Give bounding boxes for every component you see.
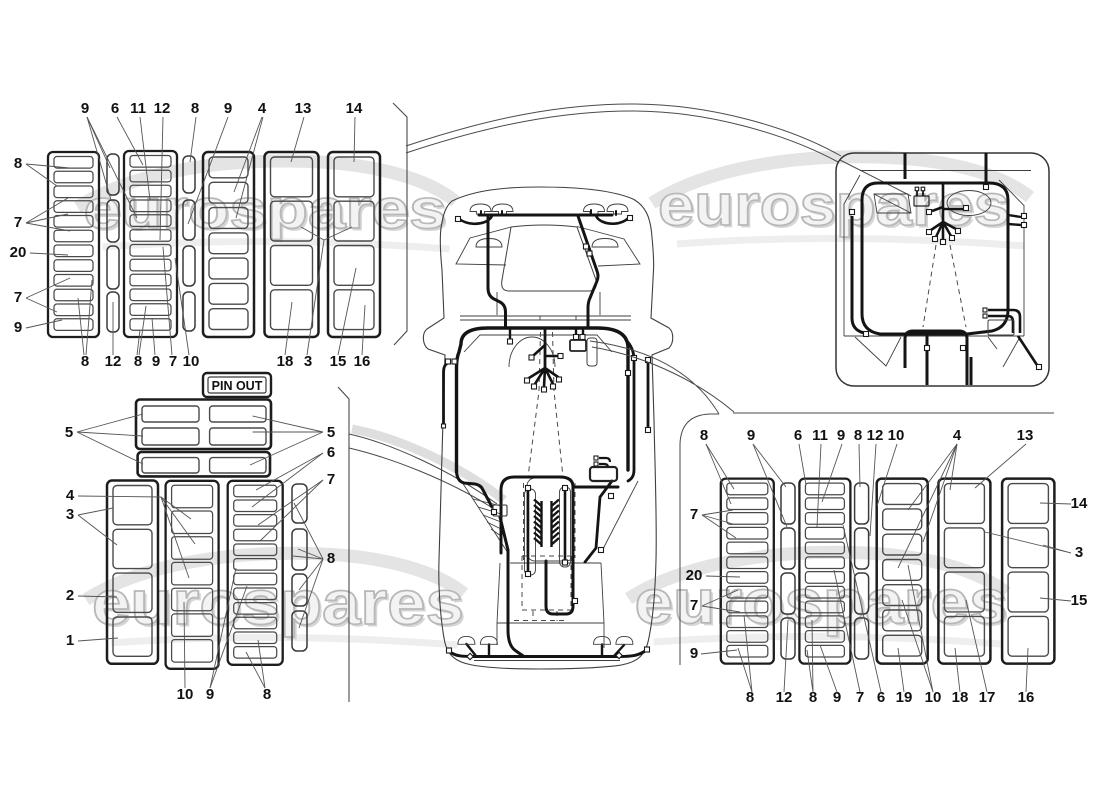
svg-text:14: 14 — [346, 100, 363, 117]
svg-text:7: 7 — [690, 506, 698, 523]
svg-text:7: 7 — [14, 214, 22, 231]
svg-text:3: 3 — [66, 506, 74, 523]
svg-text:8: 8 — [14, 155, 22, 172]
svg-text:9: 9 — [224, 100, 232, 117]
svg-text:6: 6 — [111, 100, 119, 117]
svg-text:7: 7 — [327, 471, 335, 488]
svg-text:16: 16 — [354, 353, 371, 370]
svg-text:5: 5 — [327, 424, 335, 441]
svg-text:4: 4 — [258, 100, 267, 117]
svg-text:4: 4 — [953, 427, 962, 444]
svg-text:9: 9 — [837, 427, 845, 444]
svg-text:14: 14 — [1071, 495, 1088, 512]
svg-text:15: 15 — [330, 353, 347, 370]
svg-text:8: 8 — [263, 686, 271, 703]
svg-text:9: 9 — [690, 645, 698, 662]
svg-text:PIN OUT: PIN OUT — [212, 379, 263, 393]
svg-text:7: 7 — [169, 353, 177, 370]
svg-text:7: 7 — [690, 597, 698, 614]
svg-text:8: 8 — [700, 427, 708, 444]
svg-text:9: 9 — [747, 427, 755, 444]
svg-text:9: 9 — [14, 319, 22, 336]
svg-text:8: 8 — [134, 353, 142, 370]
svg-text:4: 4 — [66, 487, 75, 504]
svg-text:8: 8 — [854, 427, 862, 444]
svg-text:11: 11 — [130, 100, 146, 117]
svg-text:eurospares: eurospares — [92, 569, 464, 638]
svg-text:8: 8 — [81, 353, 89, 370]
svg-text:13: 13 — [295, 100, 312, 117]
svg-text:20: 20 — [10, 244, 27, 261]
svg-text:10: 10 — [888, 427, 905, 444]
svg-text:10: 10 — [177, 686, 194, 703]
svg-text:8: 8 — [191, 100, 199, 117]
svg-text:15: 15 — [1071, 592, 1088, 609]
svg-text:8: 8 — [327, 550, 335, 567]
svg-text:10: 10 — [183, 353, 200, 370]
svg-text:13: 13 — [1017, 427, 1034, 444]
svg-text:11: 11 — [812, 427, 828, 444]
svg-text:12: 12 — [154, 100, 171, 117]
svg-text:6: 6 — [794, 427, 802, 444]
svg-text:5: 5 — [65, 424, 73, 441]
svg-text:3: 3 — [304, 353, 312, 370]
svg-text:9: 9 — [206, 686, 214, 703]
svg-text:8: 8 — [746, 689, 754, 706]
svg-text:3: 3 — [1075, 544, 1083, 561]
svg-text:7: 7 — [14, 289, 22, 306]
svg-text:1: 1 — [66, 632, 74, 649]
svg-text:9: 9 — [152, 353, 160, 370]
svg-text:20: 20 — [686, 567, 703, 584]
svg-text:12: 12 — [867, 427, 884, 444]
svg-text:6: 6 — [327, 444, 335, 461]
svg-text:12: 12 — [105, 353, 122, 370]
svg-text:9: 9 — [81, 100, 89, 117]
svg-text:2: 2 — [66, 587, 74, 604]
svg-text:18: 18 — [277, 353, 294, 370]
